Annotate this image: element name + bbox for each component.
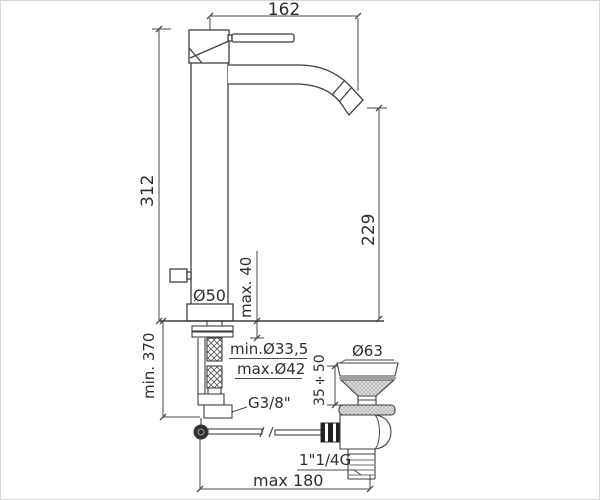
dim-label-spout-height: 229 (361, 196, 378, 246)
dim-label-spout-reach: 162 (253, 2, 315, 19)
technical-drawing: 162 312 229 Ø50 max. 40 min.Ø33,5 max.Ø4… (0, 0, 600, 500)
waste-tailpipe (348, 449, 375, 479)
dim-label-waste-thread: 1"1/4G (299, 453, 351, 468)
dim-label-rod-reach: max 180 (253, 473, 323, 489)
dim-label-waste-flange-diameter: Ø63 (352, 344, 383, 359)
supply-hose (198, 338, 205, 394)
pop-up-rod (194, 425, 321, 439)
faucet-column (191, 63, 228, 304)
threaded-shank-lower (207, 366, 222, 388)
dim-label-deck-thickness: max. 40 (239, 258, 254, 318)
side-tab (170, 269, 187, 282)
dim-label-hose-length: min. 370 (142, 333, 157, 399)
dim-label-base-diameter: Ø50 (193, 288, 226, 304)
waste-flange (337, 363, 398, 376)
waste-locknut (339, 405, 395, 415)
dim-label-supply-thread: G3/8" (248, 396, 291, 411)
spout (228, 65, 363, 115)
faucet-head (189, 30, 229, 63)
rod-ball-joint (194, 425, 208, 439)
lever-handle (232, 34, 294, 42)
base-flange (187, 304, 233, 321)
waste-body (340, 415, 391, 449)
mounting-hardware (192, 321, 233, 426)
hose-fitting (198, 394, 224, 405)
dim-label-hole-diameter-min: min.Ø33,5 (230, 342, 308, 357)
dim-label-hole-diameter-max: max.Ø42 (237, 362, 305, 377)
mounting-washer (192, 326, 233, 331)
faucet-outline (170, 30, 363, 321)
threaded-shank-upper (207, 338, 222, 361)
g38-nut (204, 405, 232, 418)
dim-label-body-height: 312 (140, 157, 157, 207)
dim-label-basin-thickness-range: 35÷50 (313, 366, 327, 406)
waste-cone (341, 380, 394, 396)
drawing-geometry (1, 1, 600, 500)
mounting-nut (192, 332, 233, 337)
